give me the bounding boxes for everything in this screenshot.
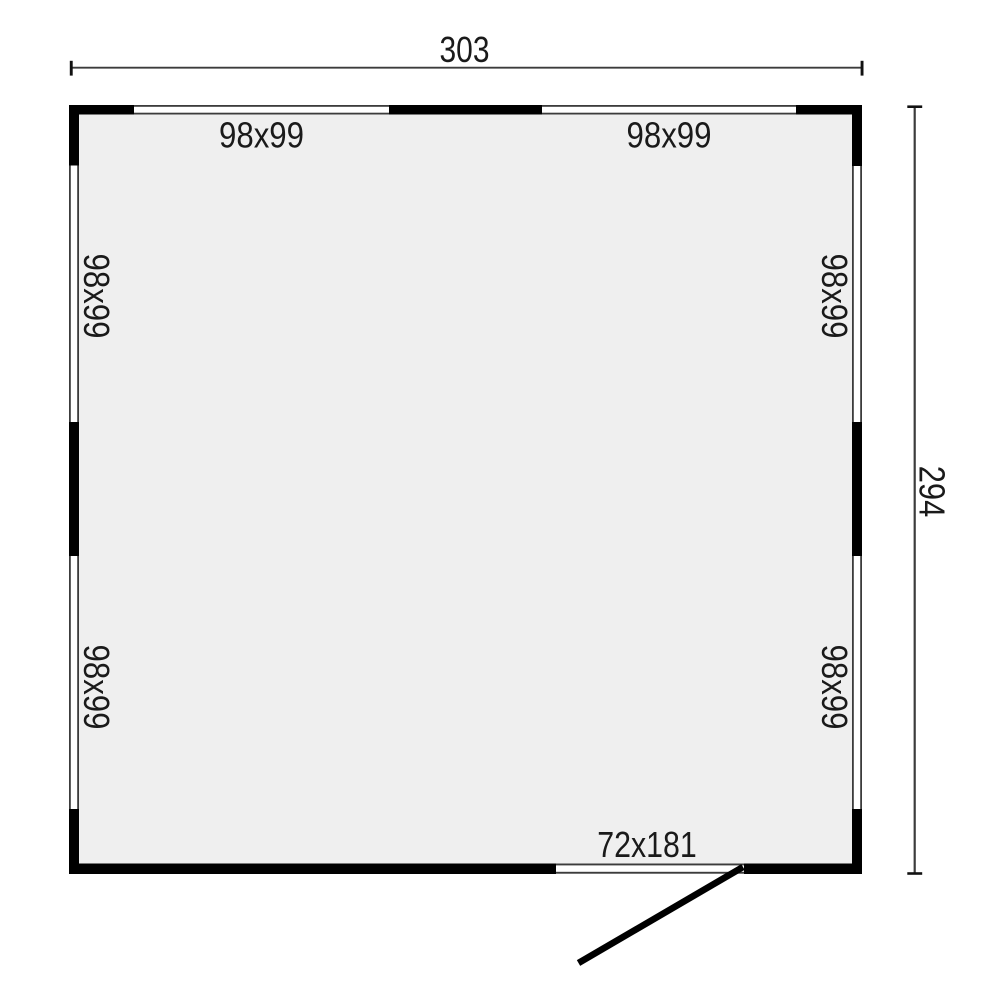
svg-text:98x99: 98x99 — [76, 645, 117, 730]
svg-text:72x181: 72x181 — [597, 824, 697, 865]
svg-text:98x99: 98x99 — [76, 254, 117, 339]
svg-text:98x99: 98x99 — [814, 645, 855, 730]
svg-text:98x99: 98x99 — [627, 115, 712, 156]
svg-text:294: 294 — [912, 466, 953, 518]
svg-text:98x99: 98x99 — [814, 254, 855, 339]
svg-text:98x99: 98x99 — [219, 115, 304, 156]
svg-text:303: 303 — [440, 29, 490, 70]
